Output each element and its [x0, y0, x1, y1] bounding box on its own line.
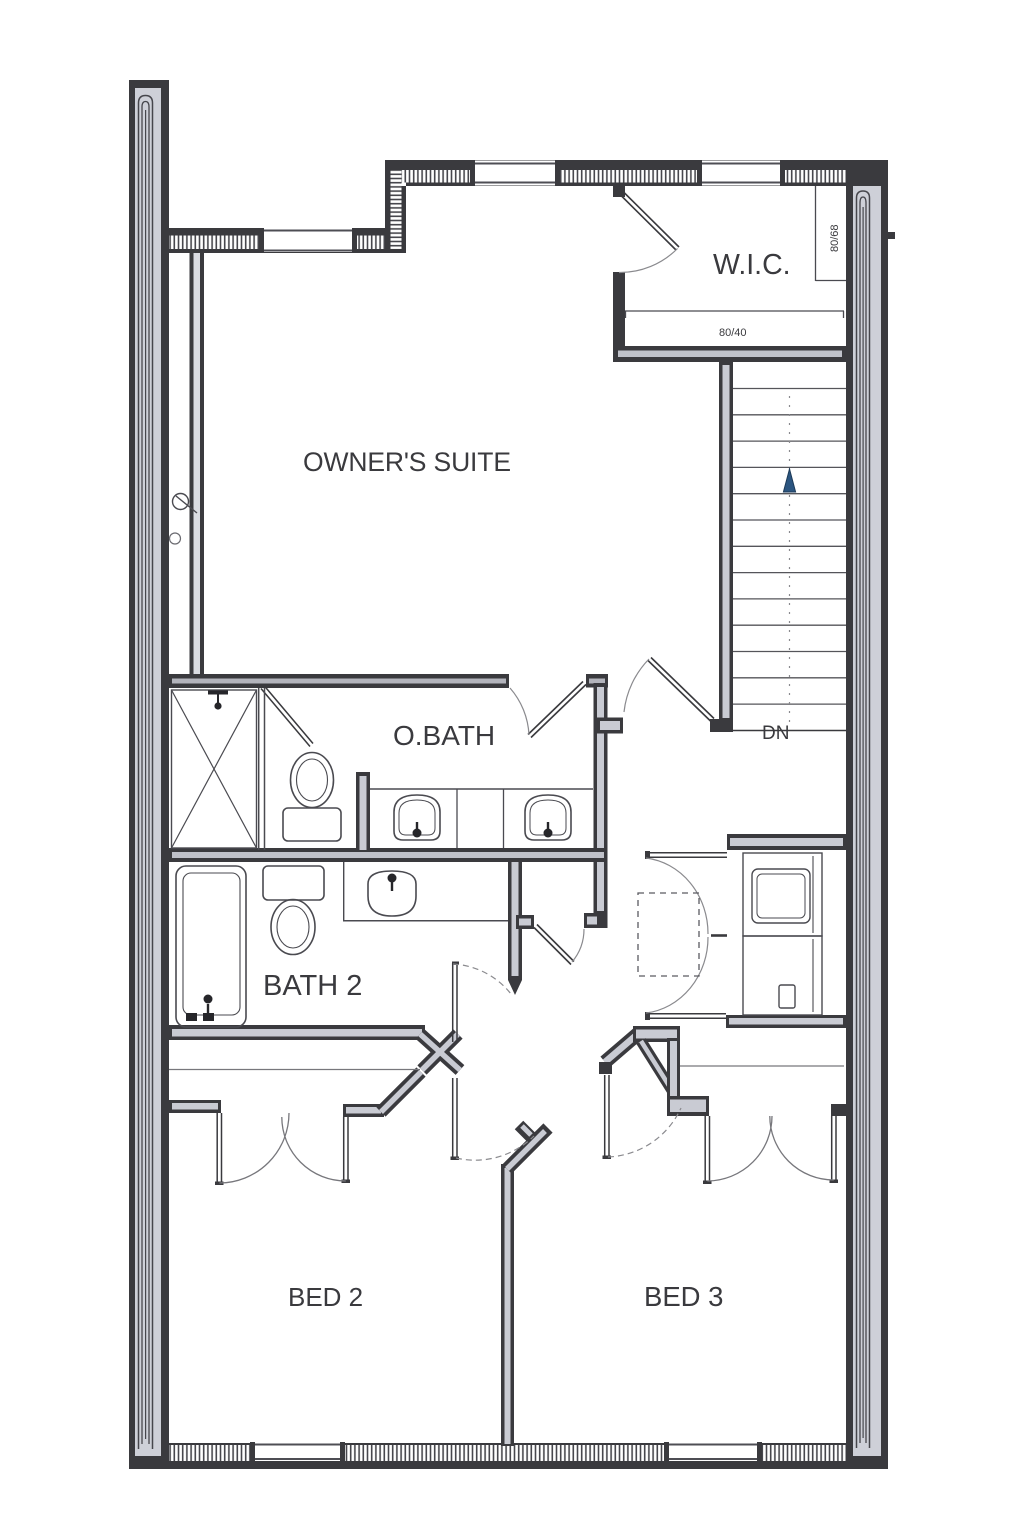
svg-text:BED 2: BED 2: [288, 1282, 363, 1312]
svg-text:OWNER'S SUITE: OWNER'S SUITE: [303, 447, 511, 477]
svg-text:80/40: 80/40: [719, 327, 747, 339]
svg-text:BED 3: BED 3: [644, 1281, 723, 1312]
svg-text:W.I.C.: W.I.C.: [713, 249, 791, 281]
svg-text:80/68: 80/68: [829, 224, 841, 252]
svg-text:O.BATH: O.BATH: [393, 720, 495, 751]
svg-text:BATH 2: BATH 2: [263, 970, 362, 1002]
svg-text:DN: DN: [762, 723, 789, 744]
